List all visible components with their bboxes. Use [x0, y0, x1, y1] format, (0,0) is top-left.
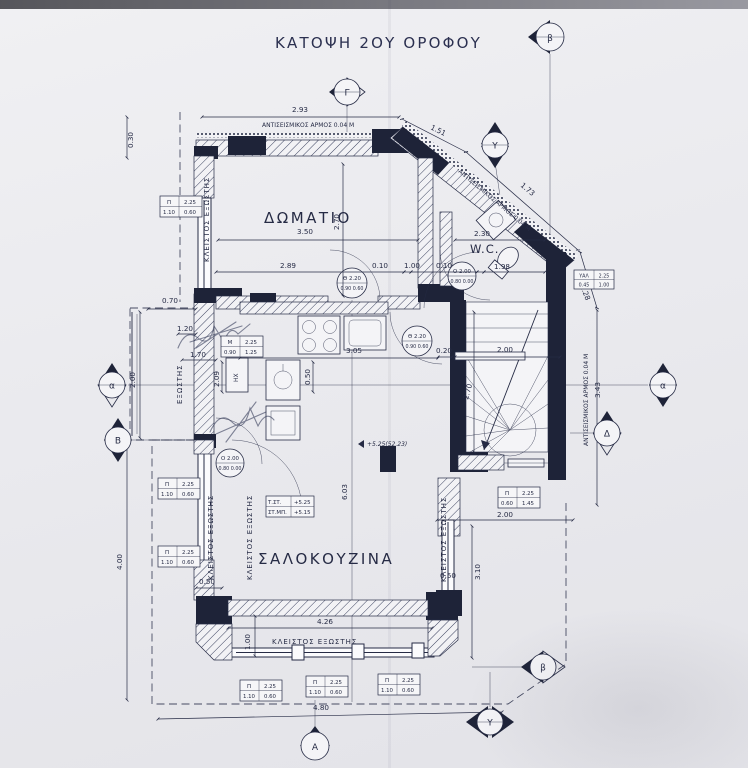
axis-letter: Β — [115, 437, 121, 447]
tag-height: 2.25 — [182, 550, 194, 556]
dim-sw-050: 0.50 — [199, 577, 215, 586]
window-tag-kitchen: Μ 2.25 0.90 1.25 — [221, 336, 263, 357]
axis-letter: α — [109, 382, 115, 392]
level-annotation: +5.25(52.23) — [358, 440, 407, 448]
strip-label-closed-balcony-west: ΚΛΕΙΣΤΟΣ ΕΞΩΣΤΗΣ — [246, 495, 254, 580]
dim-left-400: 4.00 — [115, 554, 124, 570]
dim-kitchen-305: 3.05 — [346, 346, 362, 355]
window-tag-yal: ΥΑΛ 2.25 0.45 1.00 — [574, 270, 614, 289]
note-seismic-right: ΑΝΤΙΣΕΙΣΜΙΚΟΣ ΑΡΜΟΣ 0.04 Μ — [583, 354, 590, 446]
dim-topleft-030: 0.30 — [126, 132, 135, 148]
tag-a: 1.10 — [243, 694, 256, 700]
window-tag-nw: Π 2.25 1.10 0.60 — [160, 196, 202, 217]
level-table: Τ.ΣΤ. +5.25 ΣΤ.ΜΠ. +5.15 — [266, 496, 314, 517]
dim-south-426: 4.26 — [317, 617, 333, 626]
tag-code: Π — [165, 482, 169, 488]
dim-kitchen-050: 0.50 — [303, 369, 312, 385]
axis-letter: β — [540, 664, 546, 674]
dim-bottom-480: 4.80 — [313, 703, 329, 712]
dim-bedroom-depth: 2.70 — [332, 214, 341, 230]
tag-b: 1.00 — [599, 283, 610, 289]
level-row2-value: +5.15 — [294, 510, 311, 516]
dim-diag-151: 1.51 — [429, 123, 447, 138]
dim-left-170: 1.70 — [190, 350, 206, 359]
dim-stair-020: 0.20 — [436, 346, 452, 355]
tag-height: 2.25 — [522, 491, 534, 497]
tag-code: Μ — [228, 340, 233, 346]
tag-a: 0.60 — [501, 501, 514, 507]
door-tag-wc: Ο 2.00 0.80 0.00 — [448, 262, 476, 290]
axis-letter: Υ — [491, 142, 498, 152]
door-tag-bedroom: Θ 2.20 0.90 0.60 — [337, 268, 367, 298]
dim-hall-010a: 0.10 — [372, 261, 388, 270]
axis-marker-alpha-bottom: Α — [300, 726, 330, 760]
dim-hall-010b: 0.10 — [436, 261, 452, 270]
door-tag-balcony: Ο 2.00 0.80 0.00 — [216, 449, 244, 477]
dim-hall-100: 1.00 — [404, 261, 420, 270]
axis-marker-alpha-right: α — [649, 363, 677, 407]
tag-b: 1.25 — [245, 350, 257, 356]
axis-letter: Α — [312, 743, 319, 753]
axis-marker-upsilon-bottom: Υ — [466, 706, 514, 738]
window-tag-w2: Π 2.25 1.10 0.60 — [158, 546, 200, 567]
axis-letter: Υ — [486, 719, 493, 729]
window-tag-s1: Π 2.25 1.10 0.60 — [240, 680, 282, 701]
axis-marker-beta-bottomright: β — [521, 651, 565, 683]
tag-b: 0.60 — [182, 560, 195, 566]
drawing-title: ΚΑΤΟΨΗ 2ΟΥ ΟΡΟΦΟΥ — [275, 34, 482, 52]
window-tag-s2: Π 2.25 1.10 0.60 — [306, 676, 348, 697]
window-tag-s3: Π 2.25 1.10 0.60 — [378, 674, 420, 695]
wc-shelf — [455, 352, 525, 360]
tag-b: 0.60 — [184, 210, 197, 216]
axis-marker-alpha-left: α — [98, 363, 126, 407]
dim-se-310: 3.10 — [473, 564, 482, 580]
dim-stair-200: 2.00 — [497, 345, 513, 354]
dim-wc-198: 1.98 — [494, 262, 510, 271]
axis-marker-beta-topright: β — [528, 20, 564, 54]
tag-a: 1.10 — [381, 688, 394, 694]
tag-code: Π — [247, 684, 251, 690]
dim-se-050: 0.50 — [440, 571, 456, 580]
dim-wc-width: 2.30 — [474, 229, 490, 238]
tag-a: 1.10 — [161, 492, 174, 498]
tag-a: 1.10 — [309, 690, 322, 696]
axis-marker-gamma-top: Γ — [329, 78, 365, 106]
tag-b: 0.60 — [402, 688, 415, 694]
door-tag-bottom: 0.80 0.00 — [451, 279, 474, 285]
dim-diag-173: 1.73 — [519, 181, 537, 198]
dim-hall-289: 2.89 — [280, 261, 296, 270]
dim-closedbalcony-100: 1.00 — [243, 634, 252, 650]
note-seismic-top: ΑΝΤΙΣΕΙΣΜΙΚΟΣ ΑΡΜΟΣ 0.04 Μ — [262, 122, 354, 129]
tag-a: 0.90 — [224, 350, 237, 356]
dim-right-343: 3.43 — [593, 382, 602, 398]
tag-a: 1.10 — [161, 560, 174, 566]
tag-code: Π — [385, 678, 389, 684]
strip-label-closed-balcony-south: ΚΛΕΙΣΤΟΣ ΕΞΩΣΤΗΣ — [272, 638, 357, 646]
tag-a: 0.45 — [579, 283, 590, 289]
staircase — [466, 302, 548, 456]
level-note: +5.25(52.23) — [367, 441, 407, 448]
tag-height: 2.25 — [184, 200, 196, 206]
dim-center-603: 6.03 — [340, 484, 349, 500]
tag-height: 2.25 — [264, 684, 276, 690]
door-tag-top: Θ 2.20 — [408, 334, 427, 340]
tag-b: 1.45 — [522, 501, 534, 507]
level-row2-label: ΣΤ.ΜΠ. — [268, 510, 287, 516]
tag-code: Π — [505, 491, 509, 497]
tag-height: 2.25 — [402, 678, 414, 684]
room-label-balcony: ΕΞΩΣΤΗΣ — [176, 364, 184, 404]
door-tag-bottom: 0.90 0.60 — [341, 286, 364, 292]
level-row1-label: Τ.ΣΤ. — [267, 500, 282, 506]
window-tag-w1: Π 2.25 1.10 0.60 — [158, 478, 200, 499]
window-tag-se: Π 2.25 0.60 1.45 — [498, 487, 540, 508]
tag-code: ΥΑΛ — [578, 274, 589, 280]
dim-left-200: 2.00 — [128, 372, 137, 388]
axis-marker-beta-left: Β — [104, 418, 132, 462]
floor-plan-photo: ΚΑΤΟΨΗ 2ΟΥ ΟΡΟΦΟΥ — [0, 0, 748, 768]
strip-label-closed-balcony-nw: ΚΛΕΙΣΤΟΣ ΕΞΩΣΤΗΣ — [203, 177, 211, 262]
tag-height: 2.25 — [245, 340, 257, 346]
axis-marker-upsilon-right: Υ — [481, 122, 509, 168]
dim-se-200: 2.00 — [497, 510, 513, 519]
dim-left-070: 0.70 — [162, 296, 178, 305]
axis-letter: Δ — [604, 430, 611, 440]
tag-code: Π — [165, 550, 169, 556]
tag-code: Π — [167, 200, 171, 206]
tag-b: 0.60 — [182, 492, 195, 498]
tag-a: 1.10 — [163, 210, 176, 216]
axis-letter: α — [660, 382, 666, 392]
label-heater: ΗΧ — [233, 373, 240, 382]
dim-kitchen-209: 2.09 — [212, 371, 221, 387]
stair-door — [504, 459, 548, 467]
floor-plan-drawing: ΚΑΤΟΨΗ 2ΟΥ ΟΡΟΦΟΥ — [0, 0, 748, 768]
tag-height: 2.25 — [599, 274, 610, 280]
dim-top-width: 2.93 — [292, 105, 308, 114]
tag-b: 0.60 — [264, 694, 277, 700]
axis-letter: Γ — [344, 89, 349, 99]
room-label-living: ΣΑΛΟΚΟΥΖΙΝΑ — [258, 550, 394, 568]
door-tag-top: Θ 2.20 — [343, 276, 362, 282]
tag-b: 0.60 — [330, 690, 343, 696]
dim-left-120: 1.20 — [177, 324, 193, 333]
strip-label-closed-balcony-sw: ΚΛΕΙΣΤΟΣ ΕΞΩΣΤΗΣ — [207, 495, 215, 580]
room-label-wc: W.C. — [470, 242, 499, 256]
door-tag-kitchen: Θ 2.20 0.90 0.60 — [402, 326, 432, 356]
tag-code: Π — [313, 680, 317, 686]
tag-height: 2.25 — [182, 482, 194, 488]
dim-bedroom-width: 3.50 — [297, 227, 313, 236]
door-tag-bottom: 0.80 0.00 — [219, 466, 242, 472]
axis-letter: β — [547, 34, 553, 44]
strip-label-closed-balcony-east: ΚΛΕΙΣΤΟΣ ΕΞΩΣΤΗΣ — [440, 497, 448, 582]
tag-height: 2.25 — [330, 680, 342, 686]
door-tag-top: Ο 2.00 — [221, 456, 240, 462]
door-tag-bottom: 0.90 0.60 — [406, 344, 429, 350]
level-row1-value: +5.25 — [294, 500, 311, 506]
